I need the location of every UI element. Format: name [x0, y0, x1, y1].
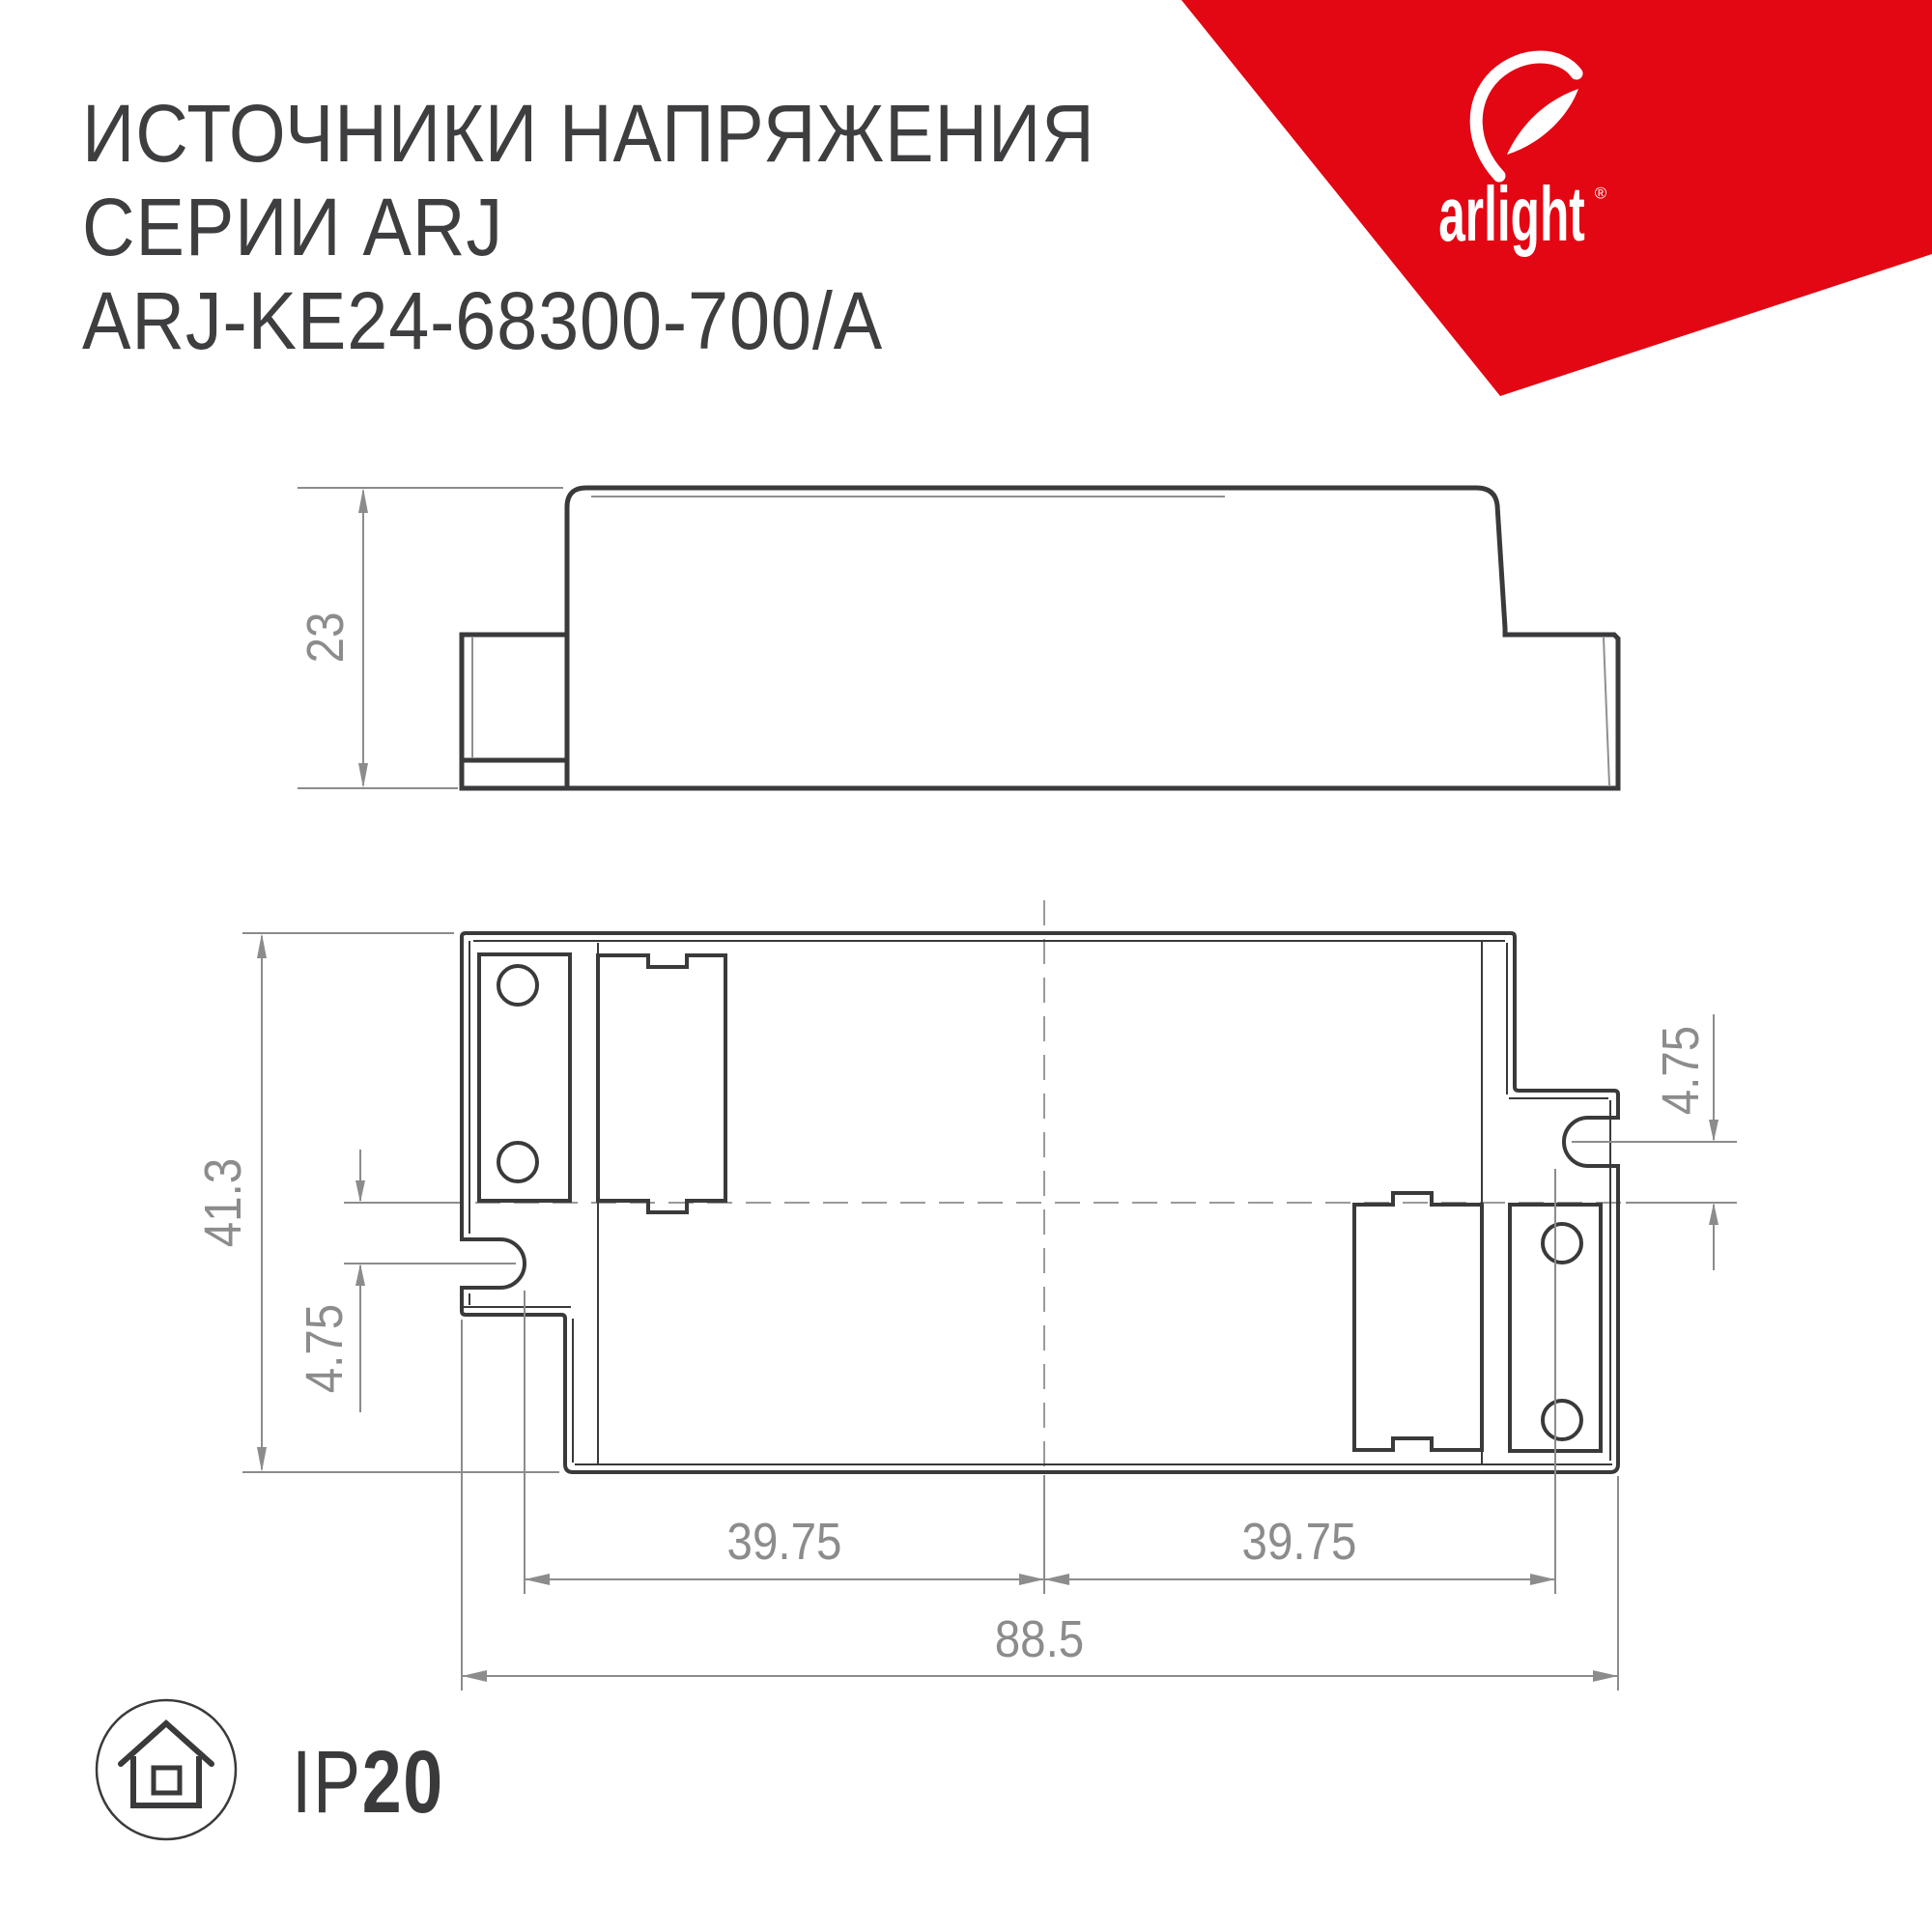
ip-value: 20 [362, 1733, 444, 1832]
dim-text-88-5: 88.5 [995, 1613, 1084, 1665]
side-view-inner-lines [472, 497, 1609, 785]
dimension-arrowheads [257, 488, 1719, 1682]
dim-text-4-75-right: 4.75 [1655, 1026, 1707, 1115]
page: ИСТОЧНИКИ НАПРЯЖЕНИЯ СЕРИИ ARJ ARJ-KE24-… [0, 0, 1932, 1932]
title-line-2: СЕРИИ ARJ [82, 186, 503, 268]
house-in-circle-icon [97, 1700, 236, 1839]
side-view [462, 488, 1618, 788]
screw-hole [498, 1143, 537, 1181]
dimensions [242, 488, 1737, 1690]
title-line-3: ARJ-KE24-68300-700/A [82, 280, 883, 361]
house-window [154, 1768, 180, 1793]
ref-lines-4-75-right [1572, 1142, 1737, 1203]
plate-top-left [479, 954, 570, 1201]
terminal-block-left [598, 955, 725, 1212]
screw-hole [1543, 1401, 1581, 1439]
brand-registered-mark: ® [1595, 185, 1607, 202]
dim-text-41-3: 41.3 [197, 1158, 249, 1247]
dim-text-4-75-left: 4.75 [298, 1304, 351, 1393]
ref-lines-4-75-left [344, 1203, 516, 1264]
ext-lines-39-75 [525, 1169, 1555, 1594]
dim-text-23: 23 [299, 612, 352, 664]
dim-text-39-75-left: 39.75 [727, 1516, 842, 1568]
screw-hole [1543, 1224, 1581, 1263]
screw-hole [498, 966, 537, 1005]
plan-view [437, 900, 1644, 1505]
title-line-1: ИСТОЧНИКИ НАПРЯЖЕНИЯ [82, 93, 1095, 174]
dim-text-39-75-right: 39.75 [1242, 1516, 1357, 1568]
side-view-left-flange [462, 635, 567, 788]
side-view-outline [567, 488, 1618, 788]
house-walls [133, 1756, 199, 1805]
ip-prefix: IP [292, 1733, 362, 1832]
ip-rating: IP20 [292, 1738, 444, 1827]
brand-wordmark: arlight [1438, 176, 1585, 253]
terminal-block-right [1354, 1193, 1482, 1450]
